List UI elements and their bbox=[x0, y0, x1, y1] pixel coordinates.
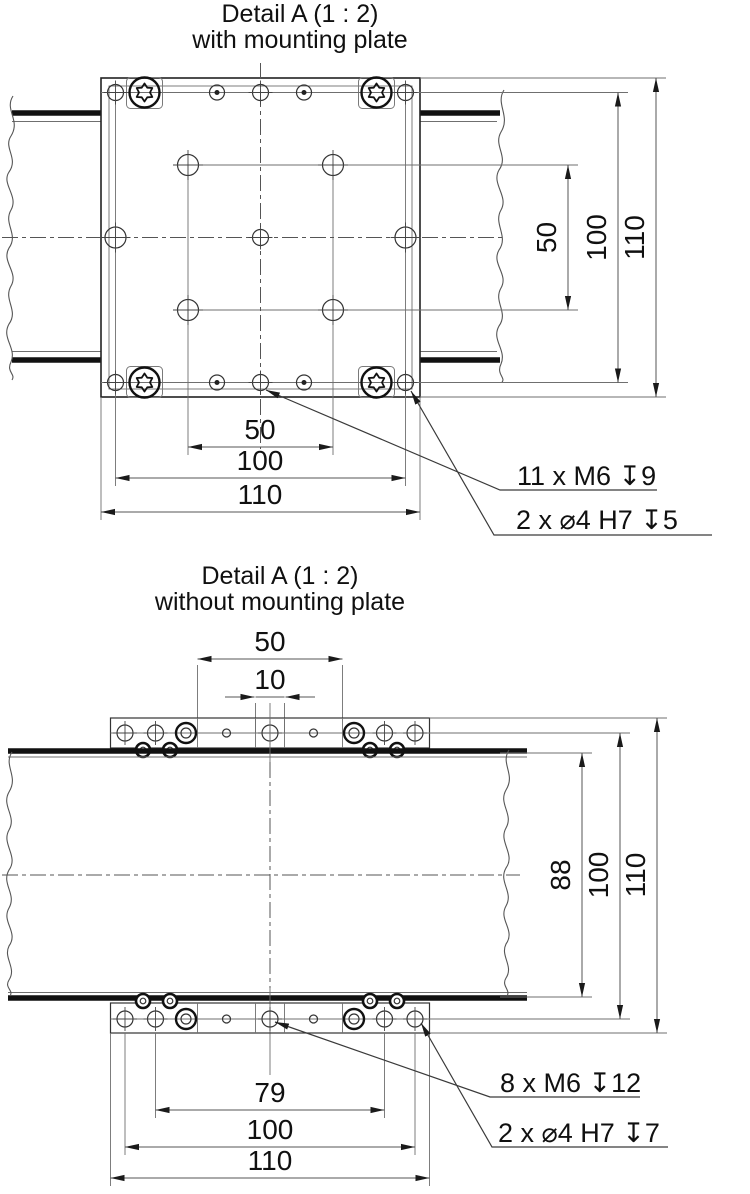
dim-value: 100 bbox=[247, 1114, 294, 1145]
detail-subtitle: without mounting plate bbox=[154, 588, 405, 616]
break-line-right bbox=[504, 750, 510, 996]
dimension-bottom-79: 79 bbox=[156, 1077, 385, 1110]
dim-value: 79 bbox=[254, 1077, 285, 1108]
dimension-bottom-110: 110 bbox=[111, 1145, 430, 1178]
dim-value: 110 bbox=[620, 853, 651, 898]
callout-label: 2 x ⌀4 H7 ↧5 bbox=[516, 505, 678, 535]
dimension-right-110: 110 bbox=[620, 718, 657, 1033]
dim-value: 100 bbox=[237, 445, 284, 476]
dimension-bottom-100: 100 bbox=[116, 445, 406, 478]
dim-value: 50 bbox=[531, 222, 562, 253]
dim-value: 110 bbox=[619, 215, 650, 260]
detail-title: Detail A (1 : 2) bbox=[201, 562, 358, 590]
dimension-right-100: 100 bbox=[583, 733, 620, 1019]
dimension-right-88: 88 bbox=[545, 753, 582, 997]
dimension-bottom-100: 100 bbox=[125, 1114, 415, 1147]
technical-drawing-page: Detail A (1 : 2) with mounting plate bbox=[0, 0, 750, 1194]
dim-value: 100 bbox=[583, 852, 614, 899]
extension-lines bbox=[101, 78, 666, 520]
dimension-right-50: 50 bbox=[531, 165, 568, 310]
dim-value: 110 bbox=[238, 479, 283, 510]
detail-title: Detail A (1 : 2) bbox=[221, 0, 378, 28]
dim-value: 50 bbox=[254, 626, 285, 657]
callout-label: 2 x ⌀4 H7 ↧7 bbox=[498, 1118, 660, 1148]
extension-lines bbox=[111, 718, 668, 1186]
callout-label: 8 x M6 ↧12 bbox=[500, 1068, 641, 1098]
dim-value: 110 bbox=[248, 1145, 293, 1176]
break-line-left bbox=[7, 752, 13, 996]
drawing-without-mounting-plate: Detail A (1 : 2) without mounting plate … bbox=[2, 562, 668, 1186]
dim-value: 88 bbox=[545, 859, 576, 890]
rail-right bbox=[420, 90, 504, 382]
dimension-bottom-50: 50 bbox=[188, 414, 333, 447]
dimension-right-110: 110 bbox=[619, 78, 656, 397]
dim-value: 100 bbox=[581, 214, 612, 261]
break-line-right bbox=[497, 90, 505, 382]
drawing-with-mounting-plate: Detail A (1 : 2) with mounting plate bbox=[2, 0, 712, 535]
detail-subtitle: with mounting plate bbox=[191, 26, 407, 54]
dimension-right-100: 100 bbox=[581, 93, 618, 383]
dimension-bottom-110: 110 bbox=[101, 479, 420, 512]
drawing-canvas: Detail A (1 : 2) with mounting plate bbox=[0, 0, 750, 1194]
dim-value: 50 bbox=[244, 414, 275, 445]
callout-label: 11 x M6 ↧9 bbox=[517, 461, 656, 491]
centerlines bbox=[2, 63, 505, 449]
dim-value: 10 bbox=[254, 664, 285, 695]
callout-thread-holes: 11 x M6 ↧9 bbox=[266, 390, 657, 491]
